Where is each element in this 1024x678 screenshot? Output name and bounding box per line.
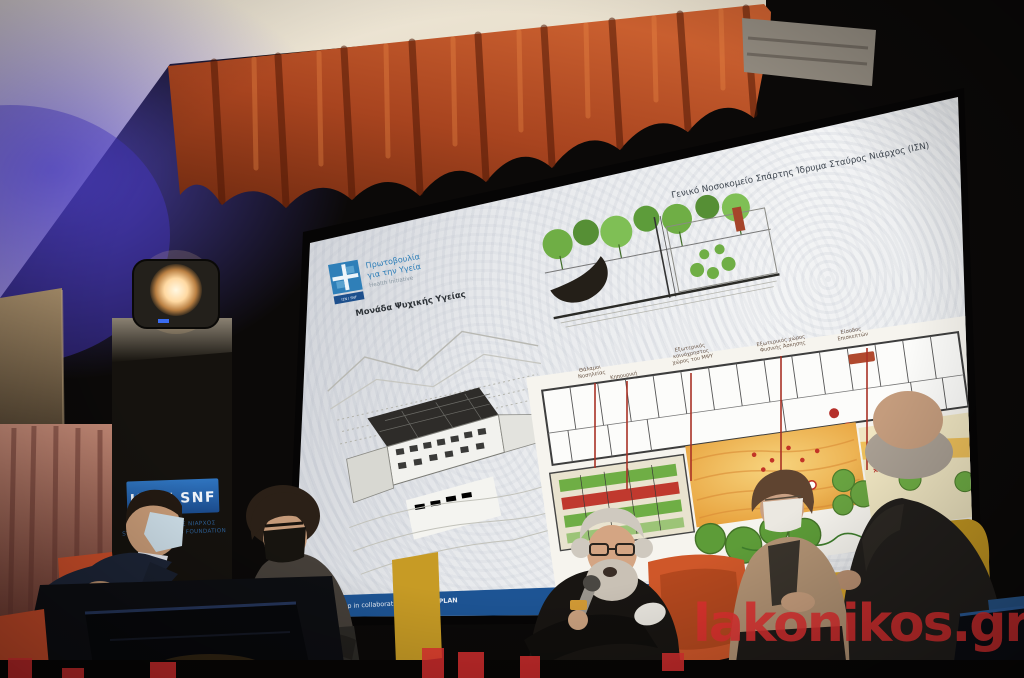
bald-crown xyxy=(873,391,943,449)
amber-object xyxy=(570,600,587,610)
foreground xyxy=(0,0,1024,678)
black-mask xyxy=(263,527,306,563)
watermark-fragment xyxy=(62,668,84,678)
watermark-fragment xyxy=(422,648,444,678)
watermark-fragment xyxy=(520,656,540,678)
watermark-fragment xyxy=(458,652,484,678)
stage-photo: ΙΣΝ / SNF ΙΔΡΥΜΑ ΣΤΑΥΡΟΣ ΝΙΑΡΧΟΣ STAVROS… xyxy=(0,0,1024,678)
white-mask xyxy=(763,498,803,532)
watermark-fragment xyxy=(150,662,176,678)
watermark-fragment xyxy=(662,653,684,671)
hand xyxy=(568,610,588,630)
watermark: lakonikos.gr xyxy=(693,598,1024,650)
mouth xyxy=(603,567,617,577)
watermark-fragment xyxy=(8,658,32,678)
